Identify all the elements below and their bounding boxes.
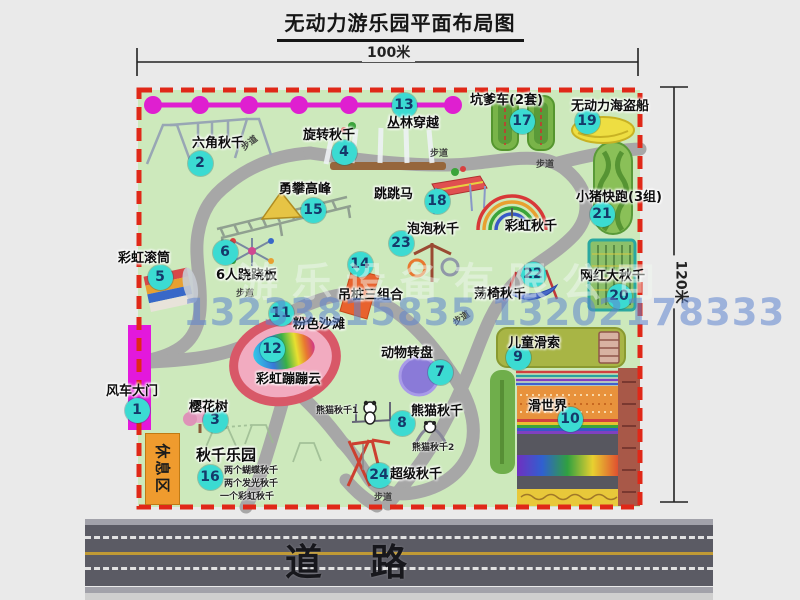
rest-area-box: 休息区: [145, 433, 180, 505]
park-layout-screenshot: 无动力游乐园平面布局图 100米 120米: [0, 0, 800, 600]
page-title: 无动力游乐园平面布局图: [0, 7, 800, 42]
height-dimension-label: 120米: [672, 255, 692, 308]
slide-world-structure: [516, 368, 640, 506]
page-title-text: 无动力游乐园平面布局图: [277, 7, 524, 42]
hedge-strip: [490, 370, 515, 474]
pig-run-structure: [594, 142, 632, 234]
animal-turntable-structure: [400, 357, 438, 395]
zipline-structure: [497, 328, 625, 367]
rest-area-label: 休息区: [152, 443, 173, 494]
road-label: 道路: [285, 532, 455, 586]
width-dimension-label: 100米: [362, 42, 415, 62]
road-lower-margin: [85, 593, 713, 600]
big-swing-structure: [589, 240, 635, 310]
road: 道路: [85, 519, 713, 593]
pirate-ship-structure: [572, 117, 634, 143]
